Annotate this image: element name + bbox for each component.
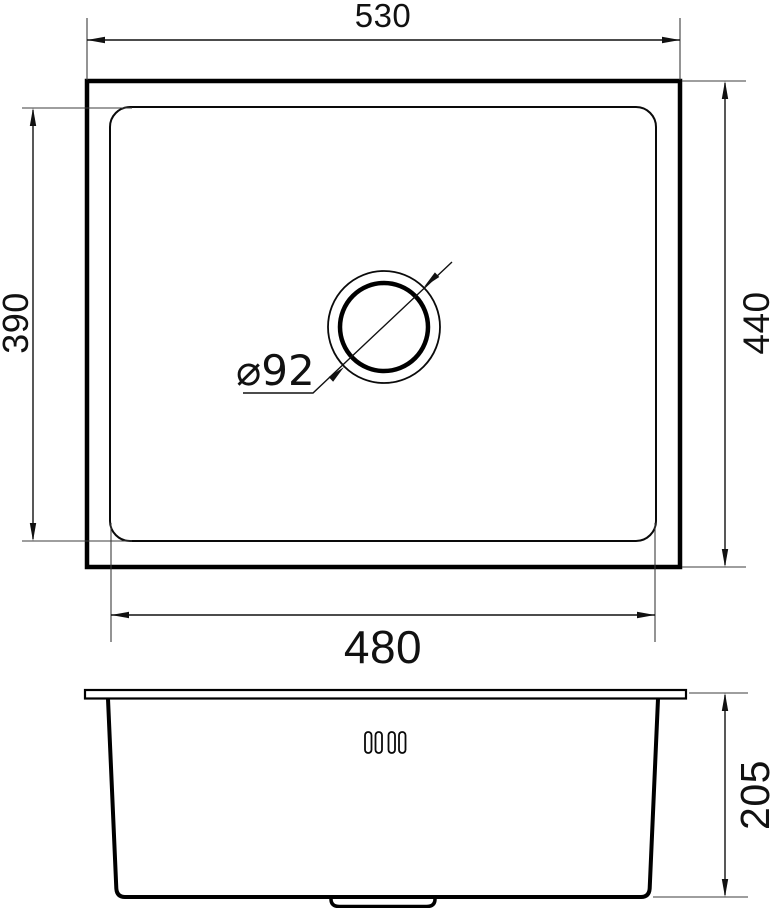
arrowhead-right (662, 37, 680, 43)
drawing-page: 530 390 440 480 ⌀92 (0, 0, 772, 908)
overflow-slot (399, 732, 406, 753)
overflow-slot (365, 732, 372, 753)
dim-label-drain: ⌀92 (236, 346, 315, 395)
dimension-overall-height: 205 (653, 693, 772, 897)
overflow-slots (365, 732, 406, 753)
top-view (87, 81, 680, 567)
dimension-overall-depth: 440 (682, 81, 772, 567)
arrowhead-top (722, 81, 728, 99)
arrowhead-bottom (30, 523, 36, 541)
arrowhead-bottom (722, 879, 728, 897)
arrowhead-top (722, 693, 728, 711)
arrowhead-bottom (722, 549, 728, 567)
basin-body (108, 699, 658, 897)
overflow-slot (389, 732, 396, 753)
arrowhead-left (111, 612, 129, 618)
dim-label-480: 480 (344, 621, 422, 673)
arrowhead-top (30, 108, 36, 126)
outer-rim-edge (87, 81, 680, 567)
dim-label-390: 390 (0, 292, 36, 354)
arrowhead-left (87, 37, 105, 43)
front-view (85, 690, 686, 907)
dim-label-530: 530 (355, 0, 412, 34)
sink-technical-drawing: 530 390 440 480 ⌀92 (0, 0, 772, 908)
rim-flange (85, 690, 686, 699)
overflow-slot (376, 732, 383, 753)
dim-label-440: 440 (736, 291, 772, 354)
dim-label-205: 205 (732, 760, 772, 830)
dimension-overall-width: 530 (87, 0, 680, 80)
arrowhead-right (637, 612, 655, 618)
